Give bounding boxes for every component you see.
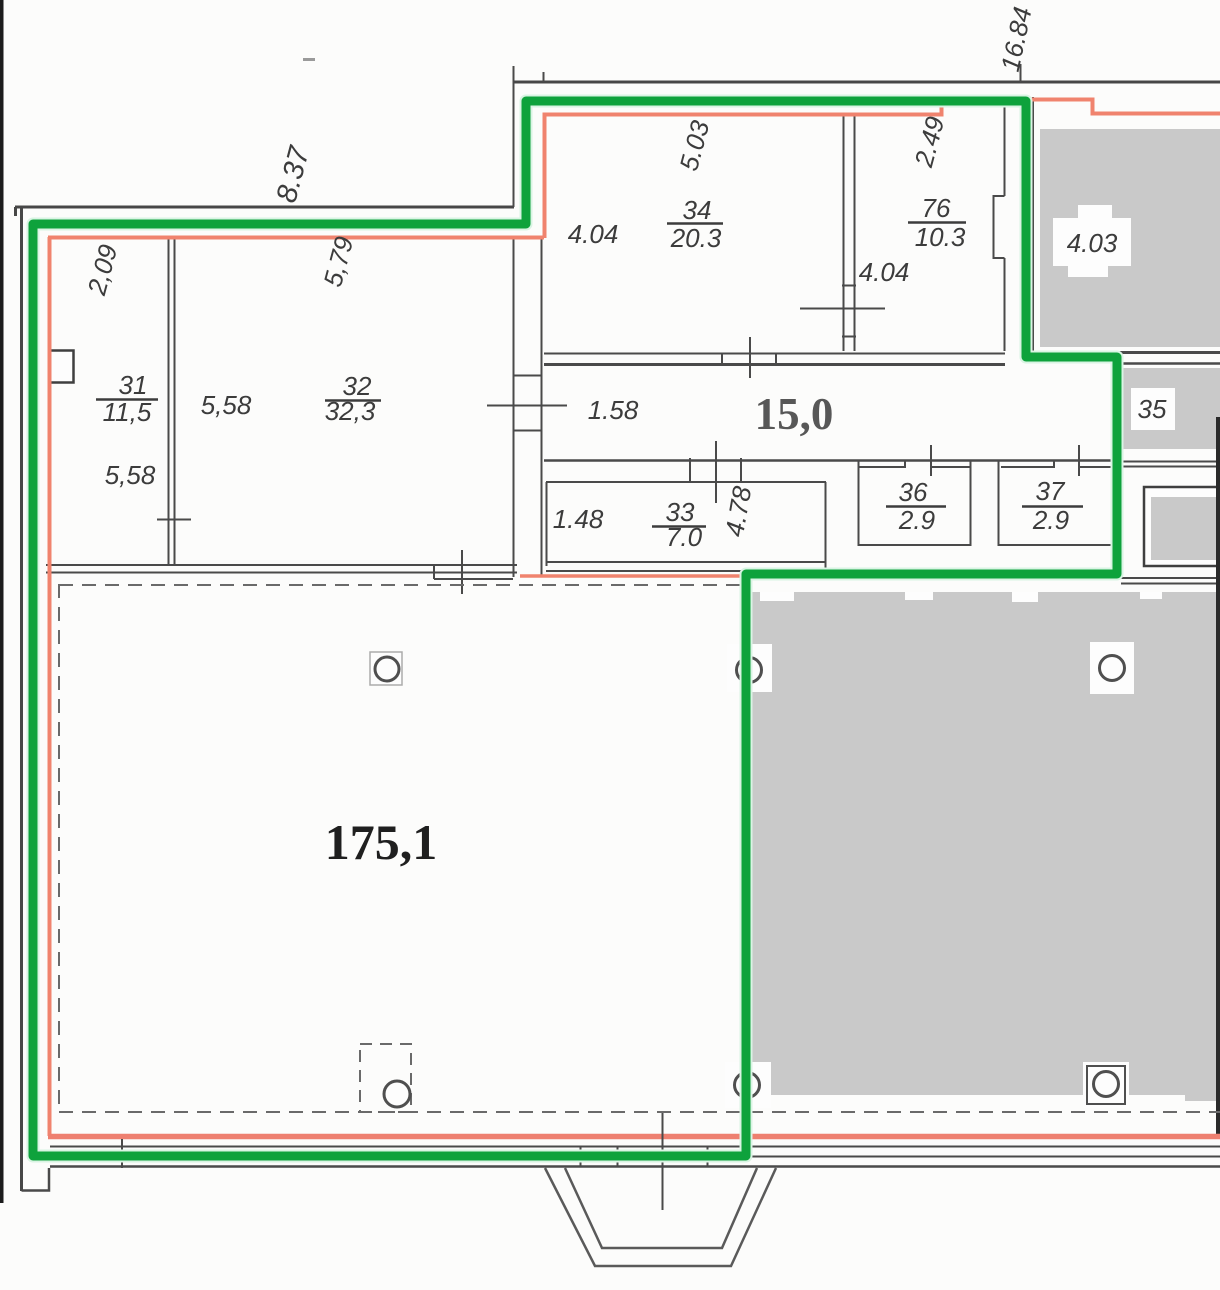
svg-text:2.9: 2.9 (898, 505, 935, 535)
svg-text:32,3: 32,3 (325, 396, 376, 426)
svg-text:5,58: 5,58 (105, 460, 156, 490)
svg-text:1.48: 1.48 (553, 504, 604, 534)
svg-text:20.3: 20.3 (670, 223, 722, 253)
svg-text:4.04: 4.04 (859, 257, 910, 287)
svg-text:34: 34 (683, 195, 712, 225)
svg-text:37: 37 (1036, 476, 1066, 506)
svg-text:36: 36 (899, 477, 928, 507)
svg-text:4.03: 4.03 (1067, 228, 1118, 258)
svg-text:1.58: 1.58 (588, 395, 639, 425)
svg-text:11,5: 11,5 (103, 397, 152, 427)
svg-text:76: 76 (922, 193, 951, 223)
svg-text:10.3: 10.3 (915, 222, 966, 252)
svg-text:2.9: 2.9 (1032, 505, 1069, 535)
svg-text:31: 31 (119, 370, 148, 400)
svg-text:7.0: 7.0 (666, 522, 703, 552)
svg-text:5,58: 5,58 (201, 390, 252, 420)
svg-text:15,0: 15,0 (755, 389, 834, 439)
svg-text:35: 35 (1138, 394, 1167, 424)
svg-text:175,1: 175,1 (325, 814, 438, 870)
svg-text:4.04: 4.04 (568, 219, 619, 249)
